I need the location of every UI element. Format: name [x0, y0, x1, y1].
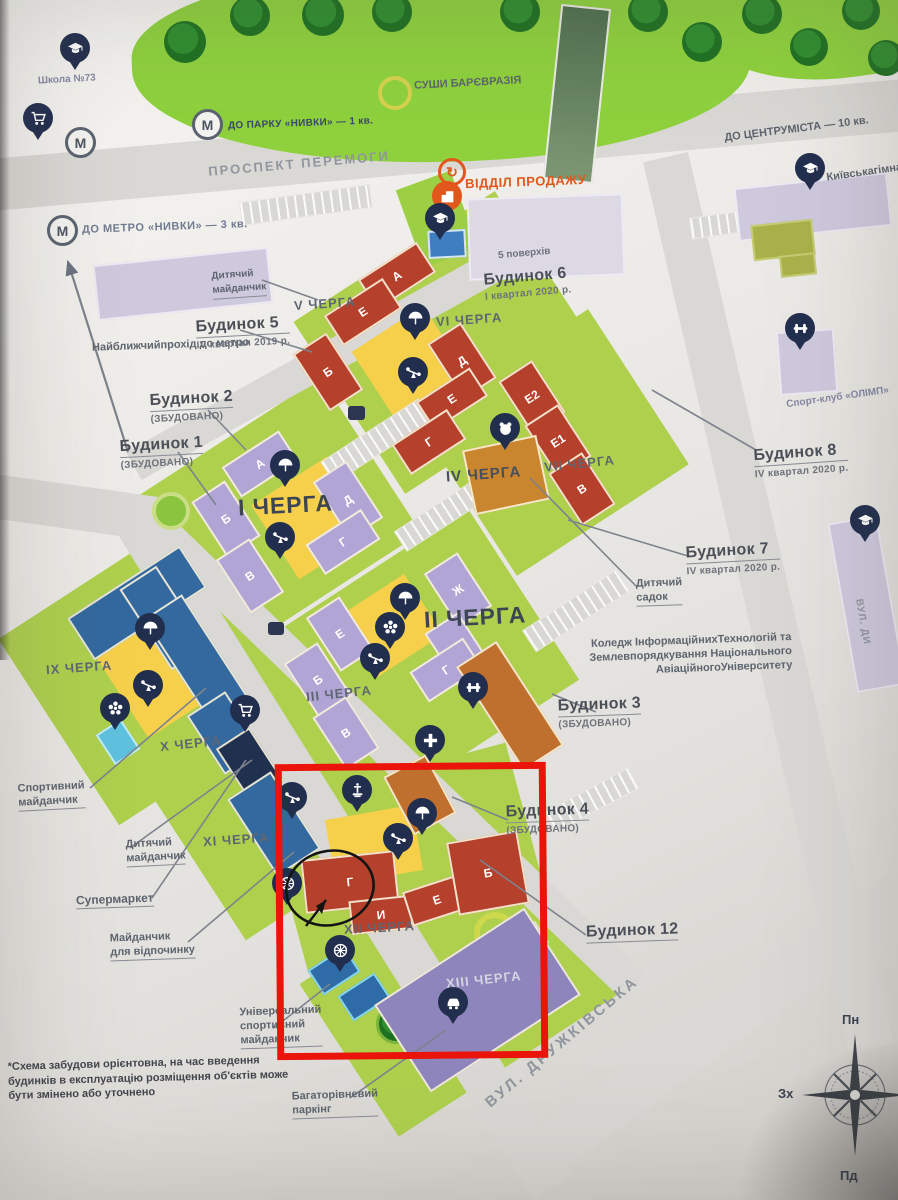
umbrella-pin	[270, 450, 300, 480]
college-label: Коледж ІнформаційнихТехнологій та Землев…	[561, 630, 792, 680]
umbrella-pin	[135, 613, 165, 643]
house-2-label: Будинок 2(ЗБУДОВАНО)	[149, 388, 234, 425]
college-pin	[850, 505, 880, 535]
umbrella-pin	[390, 583, 420, 613]
building-letter: Е1	[548, 431, 568, 451]
metro-letter: М	[75, 135, 87, 151]
kids-playground-left-label: Дитячиймайданчик	[125, 834, 186, 867]
house-5-label: Будинок 5IV квартал 2019 р.	[195, 314, 290, 352]
highlight-box	[275, 762, 549, 1060]
building-letter: Б	[321, 364, 336, 380]
flower-icon	[382, 619, 399, 636]
graduation-cap-icon	[432, 210, 449, 227]
site-plan-photo: А Е Б Д Е Г Е2 Е1 В А Б В Д Г Ж Д Г Е Б …	[0, 0, 898, 1200]
medical-cross-icon	[422, 732, 439, 749]
compass-west-label: Зх	[778, 1086, 793, 1101]
seesaw-pin	[398, 357, 428, 387]
metro-m-icon: М	[65, 127, 96, 158]
building-letter: Б	[311, 672, 326, 688]
building-letter: А	[253, 456, 268, 472]
school-blue-pin	[425, 203, 455, 233]
sushi-bar-icon	[378, 76, 412, 110]
umbrella-icon	[142, 620, 159, 637]
refresh-arrow-icon: ↻	[438, 158, 466, 186]
kindergarten-pin	[490, 413, 520, 443]
cart-icon	[30, 110, 47, 127]
house-3-label: Будинок 3(ЗБУДОВАНО)	[557, 695, 641, 731]
gymnasium-sport-field	[779, 252, 817, 278]
seesaw-icon	[272, 529, 289, 546]
medical-cross-pin	[415, 725, 445, 755]
footnote: *Схема забудови орієнтовна, на час введе…	[7, 1052, 308, 1103]
parking-strip	[239, 184, 373, 226]
building-letter: Е2	[522, 387, 542, 407]
school-pin	[60, 33, 90, 63]
bear-icon	[497, 420, 514, 437]
kindergarten-label: Дитячийсадок	[635, 575, 682, 607]
flower-icon	[107, 700, 124, 717]
umbrella-pin	[400, 303, 430, 333]
to-metro-label: ДО МЕТРО «НИВКИ» — 3 кв.	[82, 218, 248, 236]
seesaw-icon	[405, 364, 422, 381]
building-letter: Ж	[450, 581, 467, 599]
cart-icon	[237, 702, 254, 719]
graduation-cap-icon	[67, 40, 84, 57]
house-8-label: Будинок 8IV квартал 2020 р.	[753, 441, 849, 480]
building-letter: Д	[341, 492, 356, 508]
building-letter: Г	[422, 434, 435, 449]
metro-m-icon: М	[192, 109, 223, 140]
metro-letter: М	[57, 223, 69, 239]
tree-icon	[682, 22, 722, 62]
shop-pin	[23, 103, 53, 133]
compass-north-label: Пн	[842, 1012, 859, 1027]
building-letter: Г	[439, 662, 452, 677]
school-label: Школа №73	[38, 72, 96, 87]
utility-square	[348, 406, 365, 420]
building-letter: Г	[336, 534, 349, 549]
building-letter: В	[243, 568, 258, 584]
phase-1-label: І ЧЕРГА	[237, 490, 333, 522]
supermarket-label: Супермаркет	[76, 891, 154, 910]
house-12-label: Будинок 12	[586, 920, 679, 943]
rest-ground-label: Майданчикдля відпочинку	[110, 929, 196, 962]
tree-icon	[790, 28, 828, 66]
metro-letter: М	[202, 117, 214, 133]
tree-icon	[164, 21, 206, 63]
house-1-label: Будинок 1(ЗБУДОВАНО)	[119, 434, 204, 471]
umbrella-icon	[407, 310, 424, 327]
roundabout-island	[152, 492, 190, 530]
photo-edge	[0, 0, 10, 660]
building-letter: Б	[219, 511, 234, 527]
compass-rose-icon	[800, 1030, 898, 1160]
building-letter: Е	[445, 391, 459, 407]
flower-pin	[100, 693, 130, 723]
tree-icon	[868, 40, 898, 76]
sport-ground-label: Спортивниймайданчик	[17, 778, 85, 811]
phase-2-label: ІІ ЧЕРГА	[423, 601, 526, 633]
dumbbell-pin	[458, 672, 488, 702]
sales-office-label: ВІДДІЛ ПРОДАЖУ	[465, 172, 587, 191]
building-letter: Е	[356, 304, 370, 320]
graduation-cap-icon	[802, 160, 819, 177]
compass-south-label: Пд	[840, 1168, 858, 1183]
seesaw-icon	[140, 677, 157, 694]
umbrella-icon	[397, 590, 414, 607]
gymnasium-pin	[795, 153, 825, 183]
building-letter: Е	[333, 626, 347, 642]
metro-m-icon: М	[47, 215, 78, 246]
graduation-cap-icon	[857, 512, 874, 529]
seesaw-pin	[360, 643, 390, 673]
building-letter: В	[339, 725, 354, 741]
flower-pin	[375, 612, 405, 642]
supermarket-cart-pin	[230, 695, 260, 725]
sales-building-icon	[439, 188, 456, 205]
utility-square	[268, 622, 284, 635]
seesaw-icon	[367, 650, 384, 667]
building-letter: А	[390, 268, 405, 284]
umbrella-icon	[277, 457, 294, 474]
dumbbell-icon	[465, 679, 482, 696]
house-7-label: Будинок 7IV квартал 2020 р.	[685, 540, 780, 578]
building-letter: В	[575, 481, 590, 497]
kids-playground-top-label: Дитячиймайданчик	[211, 266, 267, 300]
dumbbell-icon	[792, 320, 809, 337]
seesaw-pin	[265, 522, 295, 552]
seesaw-pin	[133, 670, 163, 700]
building-letter: Д	[455, 353, 470, 369]
sport-club-pin	[785, 313, 815, 343]
